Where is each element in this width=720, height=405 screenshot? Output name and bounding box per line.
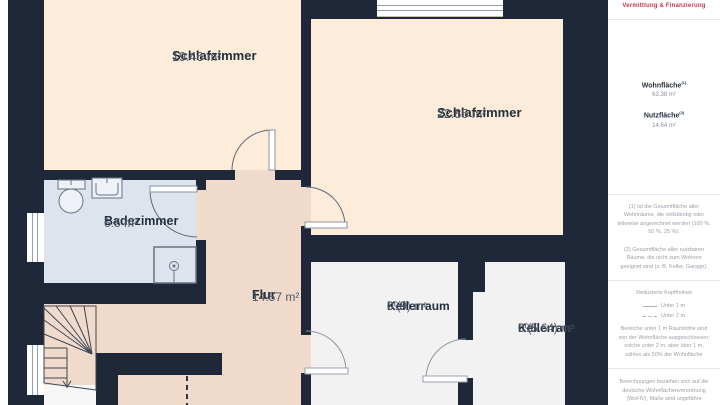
door-opening [196,190,206,240]
door-opening [301,187,311,226]
wall-segment [96,375,118,405]
door-opening [458,340,473,378]
metric-nutzflaeche: Nutzfläche(2) 14.64 m² [608,110,720,128]
legend-under-2m: Unter 2 m [608,313,720,319]
floorplan-canvas: Schlafzimmer 19.46 m² Schlafzimmer 22.85… [0,0,720,405]
room-schlafzimmer-1 [44,0,301,170]
window-icon [27,345,44,395]
divider [608,19,720,20]
legend-title: Reduzierte Kopffreiheit [608,290,720,296]
divider [608,280,720,281]
divider [608,368,720,369]
wall-segment [96,353,222,375]
footnote-1: (1) Ist die Gesamtfläche aller Wohnräume… [608,203,720,237]
room-kellerraum-2b [473,292,565,405]
info-sidebar: Vermittlung & Finanzierung Wohnfläche(1)… [608,0,720,405]
room-flur-bottom [118,375,206,405]
room-kellerraum-1 [311,262,458,405]
footnote-2: (2) Gesamtfläche aller nutzbaren Räume, … [608,246,720,272]
room-kellerraum-2 [485,262,565,292]
room-flur-lower [44,304,206,353]
room-badezimmer [44,180,196,283]
door-opening [235,170,275,180]
door-opening [301,335,311,373]
dashed-line-icon [643,316,657,317]
divider [608,194,720,195]
metric-wohnflaeche: Wohnfläche(1) 63.38 m² [608,80,720,98]
window-icon [27,213,44,262]
legend-under-1m: Unter 1 m [608,303,720,309]
disclaimer: Berechnungen beziehen sich auf die deuts… [608,378,720,405]
page-edge [0,0,8,405]
window-icon [377,0,503,17]
room-schlafzimmer-2 [311,19,563,235]
legend-note: Bereiche unter 1 m Raumhöhe sind von der… [608,325,720,359]
broker-logo-text: Vermittlung & Finanzierung [608,0,720,9]
solid-line-icon [643,306,657,307]
understair-void [44,385,96,405]
